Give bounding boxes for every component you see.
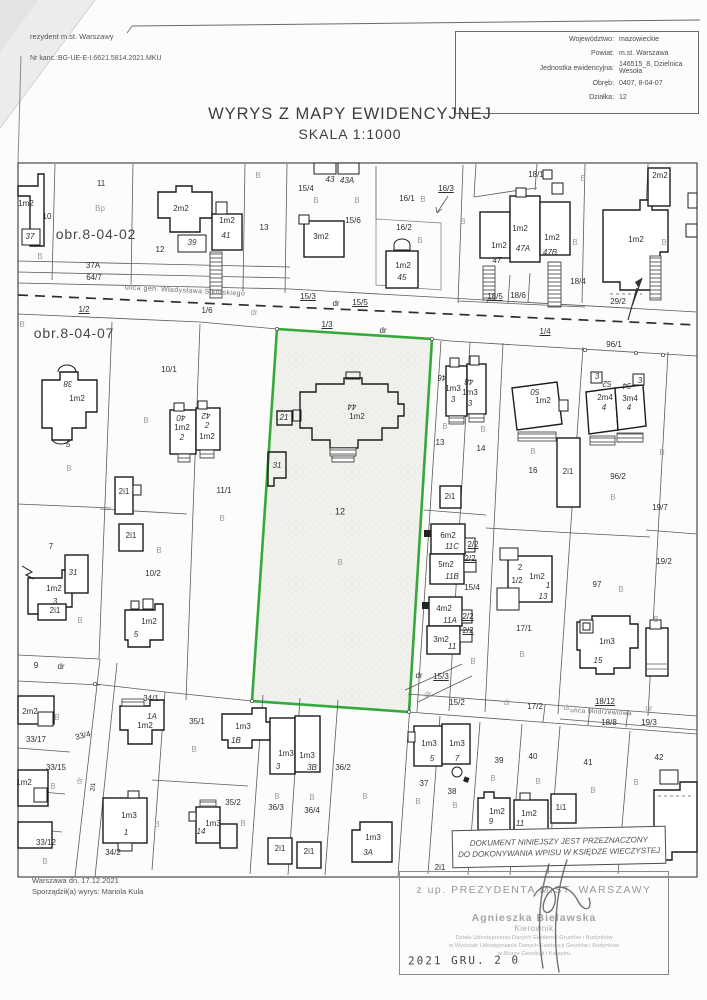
parcel-info-box: Województwo: mazowieckie Powiat: m.st. W… xyxy=(455,31,699,114)
footer-block: Warszawa dn. 17.12.2021 Sporządził(a) wy… xyxy=(32,876,143,897)
title-scale: SKALA 1:1000 xyxy=(10,126,690,142)
date-stamp: 2021 GRU. 2 0 xyxy=(408,954,520,968)
info-row-powiat: Powiat: m.st. Warszawa xyxy=(456,47,698,62)
info-row-dzialka: Działka: 12 xyxy=(456,90,698,105)
signer-name-stamp: Agnieszka Bielawska xyxy=(400,912,668,924)
info-row-jednostka: Jednostka ewidencyjna: 146515_8, Dzielni… xyxy=(456,61,698,76)
leader-arrow-16-3 xyxy=(436,196,448,213)
info-row-wojewodztwo: Województwo: mazowieckie xyxy=(456,32,698,47)
authority-stamp: z up. PREZYDENTA M.ST. WARSZAWY xyxy=(400,884,668,896)
info-label: Powiat: xyxy=(456,50,614,57)
info-value: m.st. Warszawa xyxy=(619,50,698,57)
parcel-12-boundary xyxy=(252,329,432,712)
footer-author: Sporządził(a) wyrys: Mariola Kula xyxy=(32,887,143,898)
info-label: Województwo: xyxy=(456,36,614,43)
dept-line: w Wydziale Udostępniania Danych Ewidencj… xyxy=(400,942,668,950)
document-title: WYRYS Z MAPY EWIDENCYJNEJ SKALA 1:1000 xyxy=(10,105,690,142)
info-label: Jednostka ewidencyjna: xyxy=(456,65,614,72)
road-centerline xyxy=(18,295,697,325)
info-row-obreb: Obręb: 0407, 8-04-07 xyxy=(456,76,698,91)
info-value: mazowieckie xyxy=(619,36,698,43)
info-label: Obręb: xyxy=(456,80,614,87)
dept-line: Działu Udostępniania Danych Ewidencji Gr… xyxy=(400,934,668,942)
info-value: 12 xyxy=(619,94,698,101)
signature-block: z up. PREZYDENTA M.ST. WARSZAWY Agnieszk… xyxy=(399,871,669,975)
office-line: rezydent m.st. Warszawy xyxy=(30,32,114,41)
title-main: WYRYS Z MAPY EWIDENCYJNEJ xyxy=(10,105,690,124)
info-value: 146515_8, Dzielnica Wesoła xyxy=(619,61,698,75)
info-label: Działka: xyxy=(456,94,614,101)
scanned-document-page: .p{stroke:#5a5a5a;stroke-width:0.8;fill:… xyxy=(0,0,707,1000)
subject-parcel-12 xyxy=(252,329,432,712)
signer-title-stamp: Kierownik xyxy=(400,924,668,933)
purpose-stamp: DOKUMENT NINIEJSZY JEST PRZEZNACZONY DO … xyxy=(452,826,667,868)
footer-date: Warszawa dn. 17.12.2021 xyxy=(32,876,143,887)
info-value: 0407, 8-04-07 xyxy=(619,80,698,87)
case-number: Nr kanc.:BG-UE-E-I.6621.5814.2021.MKU xyxy=(30,55,162,62)
